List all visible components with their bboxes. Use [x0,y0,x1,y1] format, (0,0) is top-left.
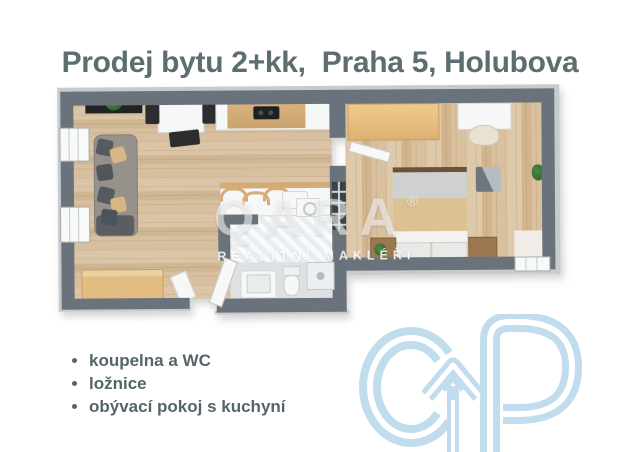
feature-list: koupelna a WC ložnice obývací pokoj s ku… [72,349,286,418]
cp-monogram-logo [356,314,626,452]
watermark-brand: QARA® [176,191,456,245]
wall-divider [329,104,345,138]
registered-icon: ® [407,193,418,210]
listing-image: Prodej bytu 2+kk, Praha 5, Holubova [0,0,640,452]
window [60,207,90,243]
dining-chair [145,104,159,124]
washbasin [246,274,270,293]
feature-item: koupelna a WC [89,349,286,372]
shower [306,262,334,290]
feature-label: obývací pokoj s kuchyní [89,397,286,416]
toilet-bowl [284,275,300,296]
watermark: QARA® REALITNÍ MAKLÉŘI [176,191,456,264]
floor-plan: QARA® REALITNÍ MAKLÉŘI [57,84,563,322]
watermark-tagline: REALITNÍ MAKLÉŘI [176,248,456,264]
sofa-pillow [96,163,114,181]
feature-label: ložnice [89,374,147,393]
window [514,256,550,271]
ottoman [476,167,501,192]
dining-chair [202,104,216,124]
feature-item: ložnice [89,372,286,395]
wall-bathroom [217,298,347,313]
page-title: Prodej bytu 2+kk, Praha 5, Holubova [0,46,640,80]
desk-chair [468,125,499,146]
nightstand [468,237,497,259]
cooktop [253,106,279,119]
wall-living-bottom [62,298,190,310]
wall-right [541,88,555,269]
wall-left [60,92,75,309]
feature-label: koupelna a WC [89,351,211,370]
feature-item: obývací pokoj s kuchyní [89,395,286,418]
sideboard [81,269,163,302]
wardrobe [347,103,439,141]
sofa-pillow [100,209,117,226]
window [59,128,89,162]
